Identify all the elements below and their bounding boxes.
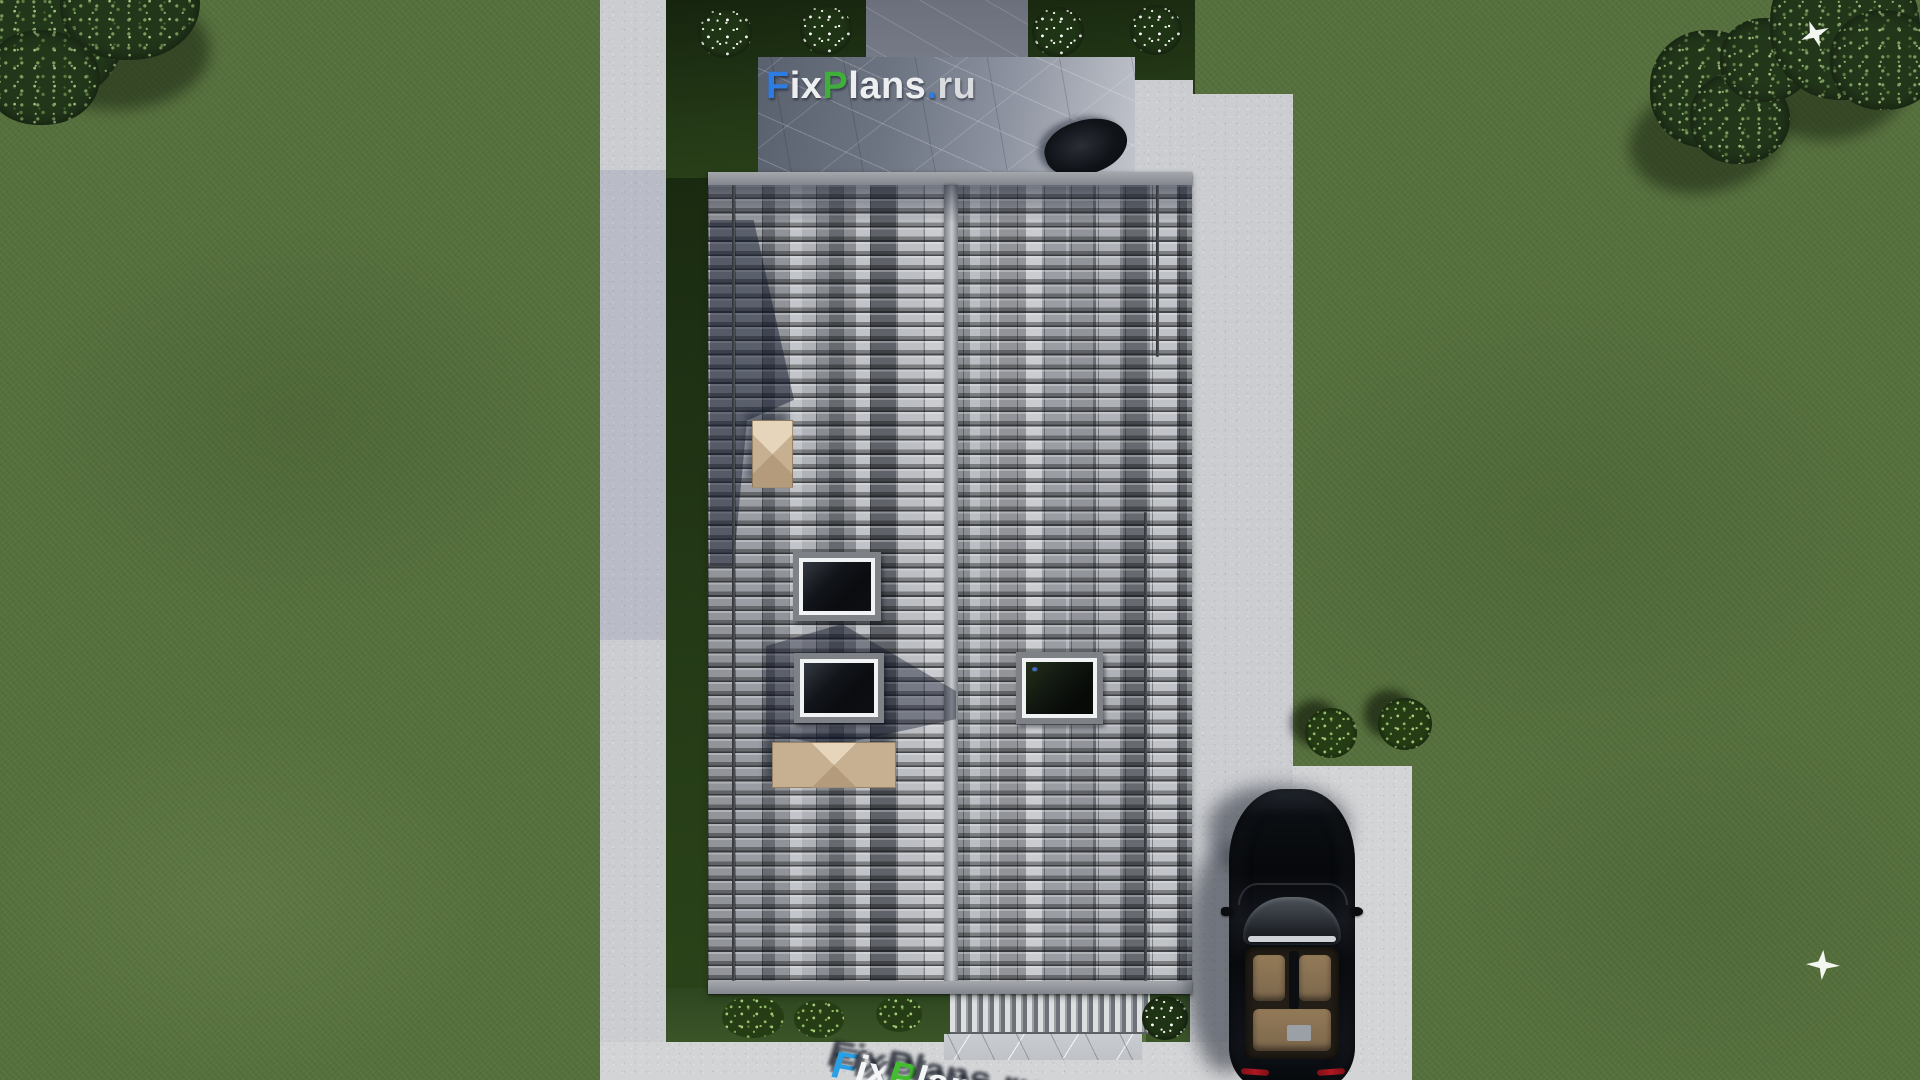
roof-bottom-eave xyxy=(708,981,1192,994)
watermark-letter: ix xyxy=(790,65,823,107)
flying-bird xyxy=(1804,948,1842,982)
green-bush xyxy=(1305,708,1357,758)
roof-top-shading xyxy=(708,185,1192,223)
car-console xyxy=(1289,951,1299,1009)
aerial-render-scene: FixPlans.ru xyxy=(0,0,1920,1080)
car-cabin xyxy=(1245,947,1339,1059)
green-bush xyxy=(1378,698,1432,750)
car-taillight xyxy=(1317,1068,1345,1076)
skylight-window xyxy=(794,653,884,723)
skylight-glass xyxy=(804,663,874,713)
stone-patio: FixPlans.ru xyxy=(758,57,1135,177)
patio-side-pavement xyxy=(1135,80,1193,178)
house-roof xyxy=(708,172,1192,994)
car-taillight xyxy=(1241,1068,1269,1076)
pergola-canopy xyxy=(950,988,1150,1034)
skylight-window xyxy=(1016,652,1103,724)
white-flower-bush xyxy=(698,8,752,58)
shrub xyxy=(794,1000,844,1038)
white-flower-bush xyxy=(1032,7,1084,57)
footpath-shadow xyxy=(600,170,666,640)
car xyxy=(1229,789,1355,1080)
car-mirror xyxy=(1351,907,1363,916)
marble-terrace xyxy=(944,1034,1142,1060)
skylight-frame xyxy=(1022,658,1097,718)
roof-ridge xyxy=(944,185,958,981)
windshield-reflection xyxy=(1248,936,1336,942)
skylight-frame xyxy=(800,659,878,717)
roof-top-eave xyxy=(708,172,1192,185)
gutter-pipe xyxy=(1156,185,1159,357)
watermark-letter: lans xyxy=(848,65,926,107)
car-license-plate xyxy=(1287,1025,1311,1041)
white-flower-bush xyxy=(1130,5,1182,55)
gutter-pipe xyxy=(732,185,735,981)
car-seat xyxy=(1253,955,1285,1001)
chimney-wide xyxy=(772,742,896,788)
car-seat xyxy=(1299,955,1331,1001)
white-flower-bush xyxy=(1142,996,1188,1040)
skylight-window xyxy=(793,552,881,621)
shrub xyxy=(876,996,922,1032)
chimney xyxy=(752,420,793,488)
tree-top-right xyxy=(1830,10,1920,110)
watermark-letter: P xyxy=(822,65,848,107)
watermark-letter: F xyxy=(766,65,790,107)
skylight-glass xyxy=(1026,662,1093,714)
top-walkway xyxy=(866,0,1028,62)
car-mirror xyxy=(1221,907,1233,916)
skylight-glass xyxy=(803,562,871,611)
gutter-pipe xyxy=(1144,512,1147,981)
skylight-frame xyxy=(799,558,875,615)
watermark-letter: ru xyxy=(937,65,976,107)
site-watermark: FixPlans.ru xyxy=(766,67,976,105)
shrub xyxy=(722,996,784,1038)
watermark-letter: . xyxy=(926,65,937,107)
white-flower-bush xyxy=(800,5,852,55)
